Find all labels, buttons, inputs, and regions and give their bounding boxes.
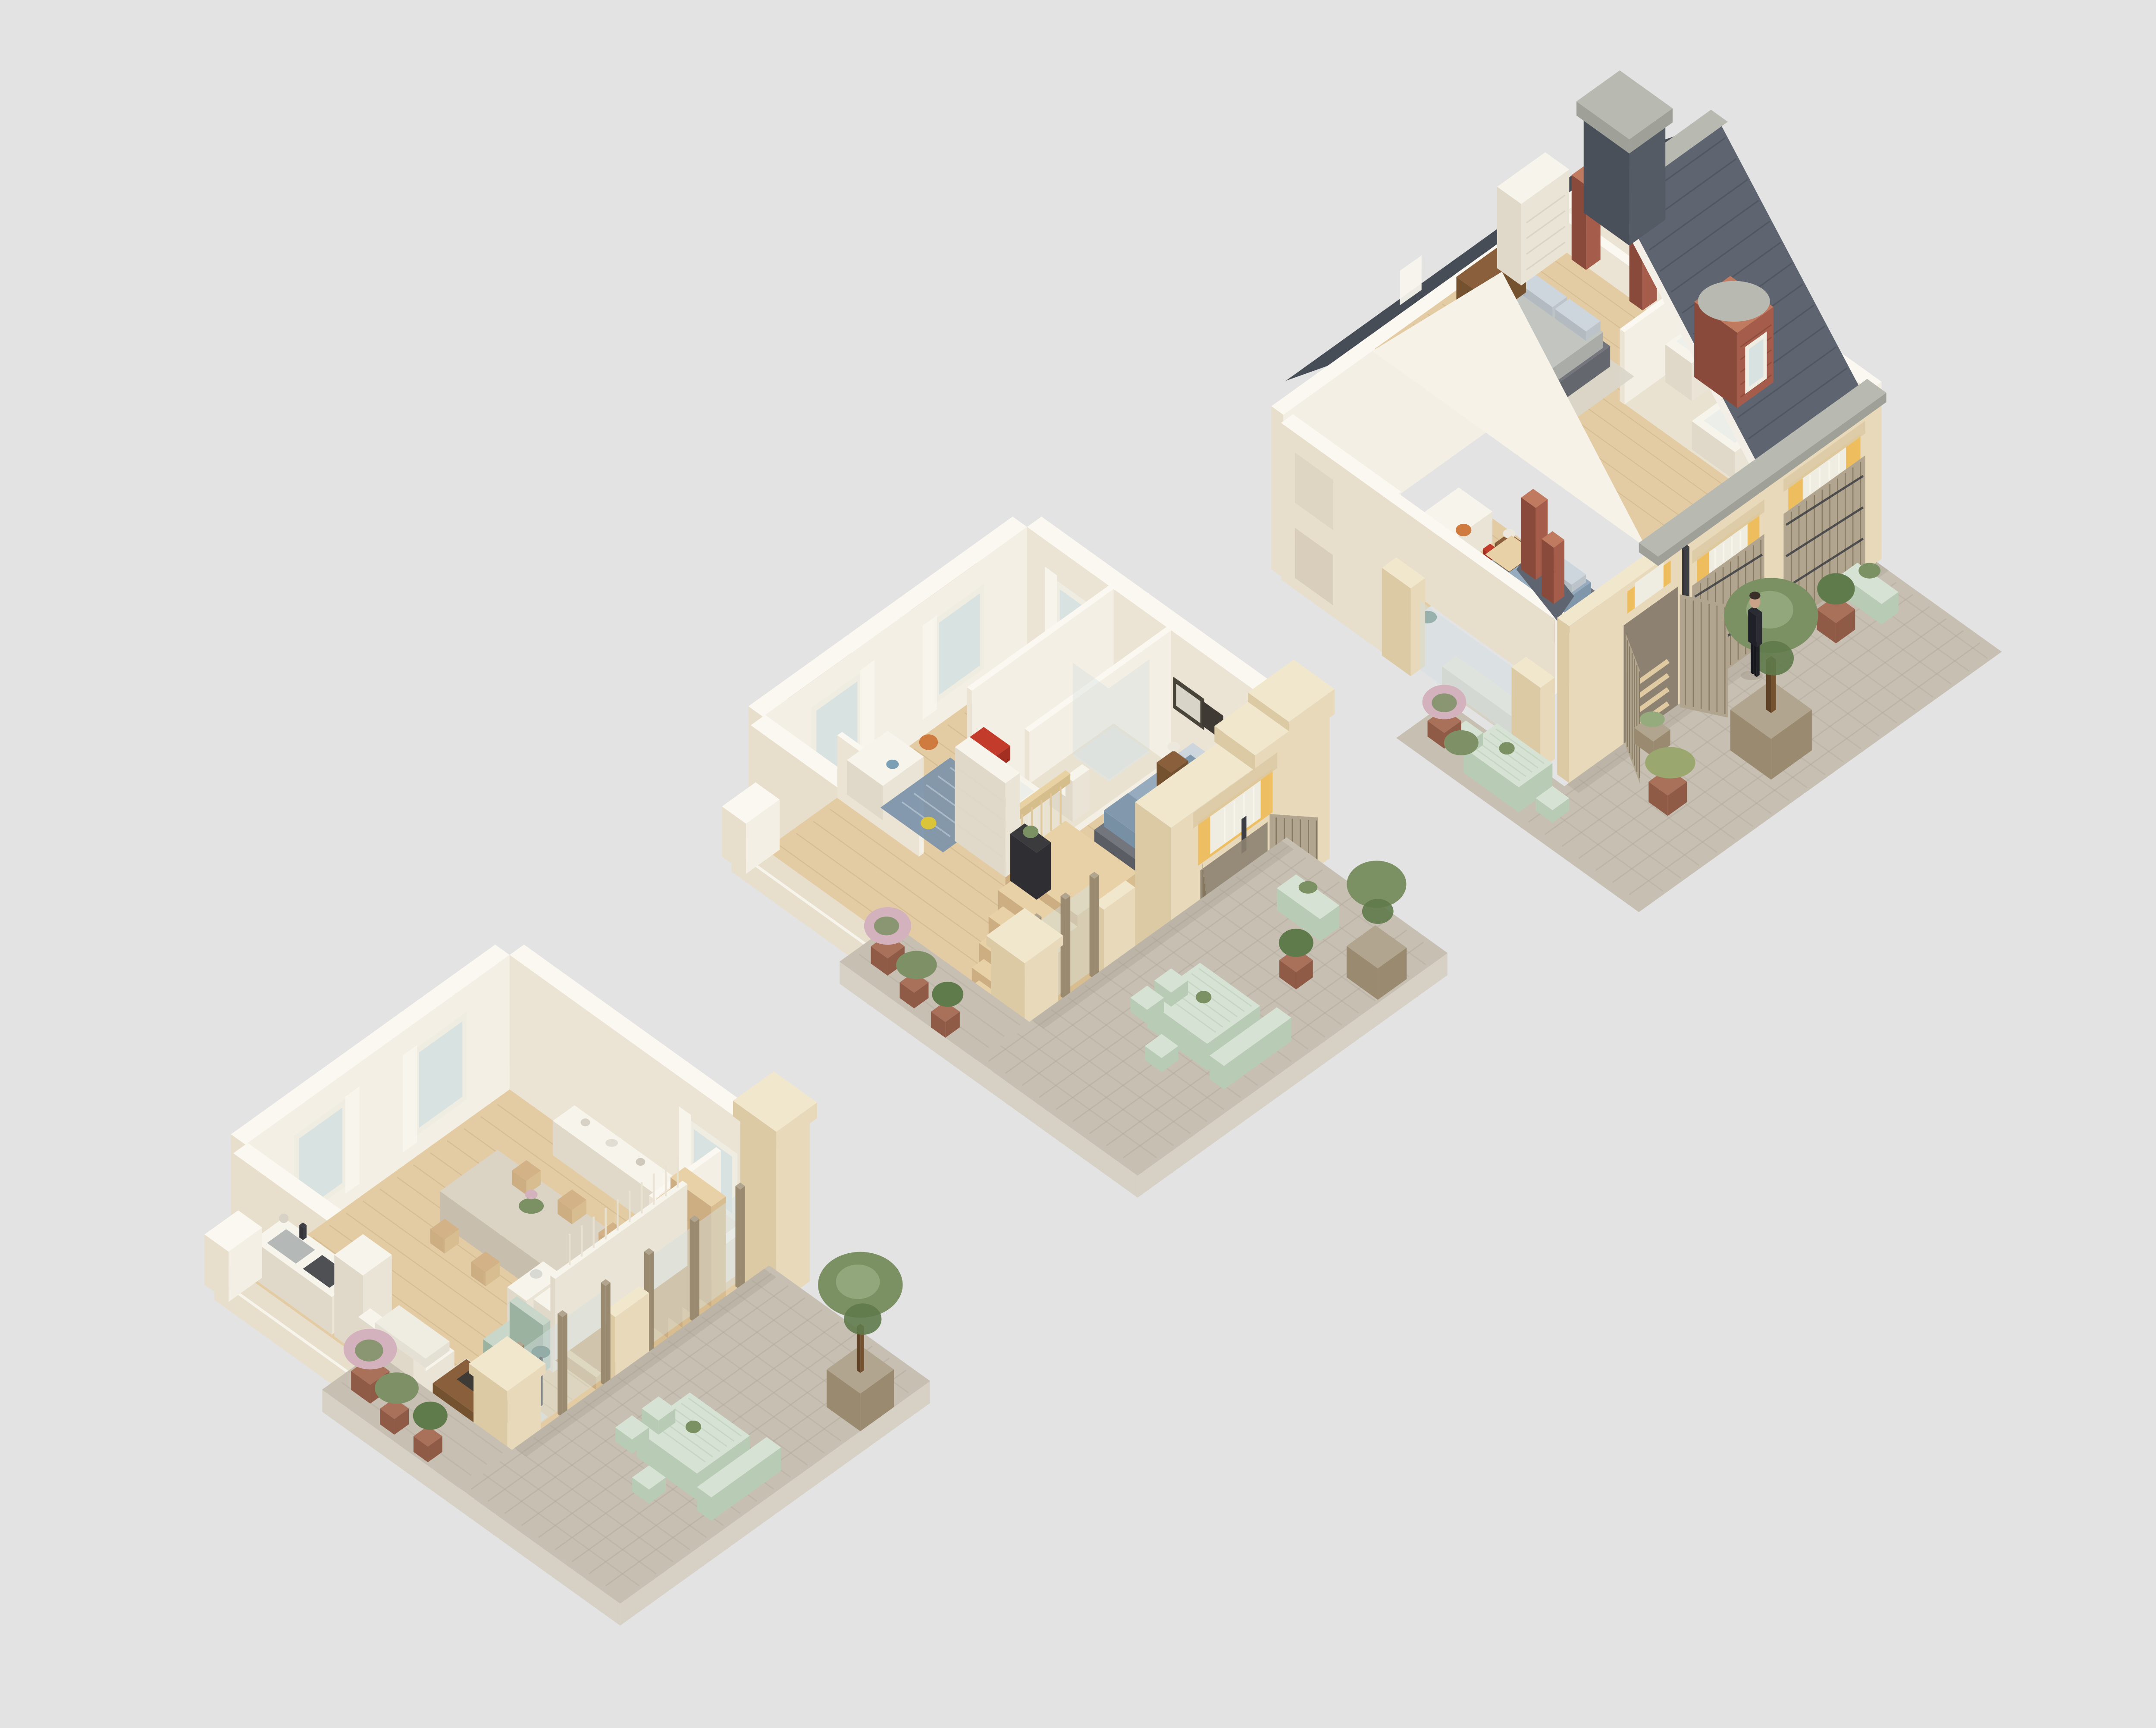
attic-wardrobe (1497, 187, 1521, 285)
person-hair (1749, 592, 1760, 599)
timber-mullion (558, 1314, 562, 1418)
brick-chimney-stack (1542, 539, 1554, 604)
curtain (403, 1045, 417, 1152)
person-torso (1748, 610, 1757, 648)
person-legs (1757, 644, 1760, 677)
bedside-lamp (1167, 742, 1180, 751)
lavender-bush (1444, 730, 1479, 755)
timber-mullion (606, 1283, 611, 1387)
boxwood-ball (1279, 929, 1313, 957)
table-flowers-bloom (525, 1190, 537, 1199)
isometric-floorplan-render (0, 0, 2156, 1728)
timber-mullion (1065, 896, 1070, 1000)
kids-stool-yellow (921, 817, 936, 830)
utensil-pot (279, 1214, 288, 1223)
timber-mullion (649, 1252, 654, 1355)
flowering-bush-leaves (1432, 693, 1457, 712)
timber-mullion (735, 1186, 740, 1290)
vase (581, 1118, 590, 1126)
kids-toy-blue (886, 760, 899, 769)
vase (636, 1158, 646, 1166)
tree-canopy (1362, 899, 1394, 924)
boxwood-ball (1817, 573, 1855, 604)
lavender-bush (896, 951, 937, 979)
curtain (923, 615, 937, 720)
stone-pier (1540, 677, 1554, 769)
person-legs (1754, 644, 1756, 677)
timber-mullion (740, 1186, 745, 1290)
person-legs (1751, 642, 1753, 675)
faucet (303, 1225, 307, 1240)
bench-plant (1299, 881, 1318, 894)
grass-tuft (1645, 747, 1695, 779)
bench-plant (1858, 563, 1880, 578)
bowl (605, 1139, 618, 1147)
timber-mullion (695, 1219, 699, 1323)
kids-stool-orange (919, 734, 938, 750)
kids-stool (1456, 524, 1471, 536)
tree-canopy (836, 1265, 880, 1299)
render-stage (0, 0, 2156, 1728)
stone-facade (1557, 618, 1569, 783)
shelf-lamp (530, 1269, 542, 1279)
table-plant (686, 1421, 701, 1433)
gate-door-open (1680, 595, 1728, 718)
faucet (299, 1225, 303, 1240)
curtain (345, 1086, 359, 1194)
timber-mullion (1061, 896, 1065, 1000)
dormer-zinc-barrel-roof (1698, 281, 1770, 322)
planter-greens (1640, 711, 1665, 727)
table-plant (1499, 742, 1514, 754)
brick-chimney-stack (1521, 498, 1536, 580)
flowering-bush-leaves (355, 1340, 383, 1362)
bush-ball (413, 1402, 448, 1430)
lavender-bush (375, 1372, 419, 1404)
person-torso (1757, 612, 1762, 648)
timber-mullion (562, 1314, 567, 1418)
flowering-bush-leaves (874, 917, 899, 936)
tree-canopy (844, 1303, 881, 1335)
timber-mullion (601, 1283, 605, 1387)
table-flowers (519, 1198, 544, 1214)
timber-mullion (690, 1219, 695, 1323)
bush-ball (932, 982, 963, 1007)
shelf-plant (1023, 826, 1038, 838)
timber-mullion (1094, 875, 1099, 979)
brick-chimney-stack (1554, 540, 1564, 604)
table-plant (1196, 991, 1211, 1003)
timber-mullion (1090, 875, 1094, 979)
